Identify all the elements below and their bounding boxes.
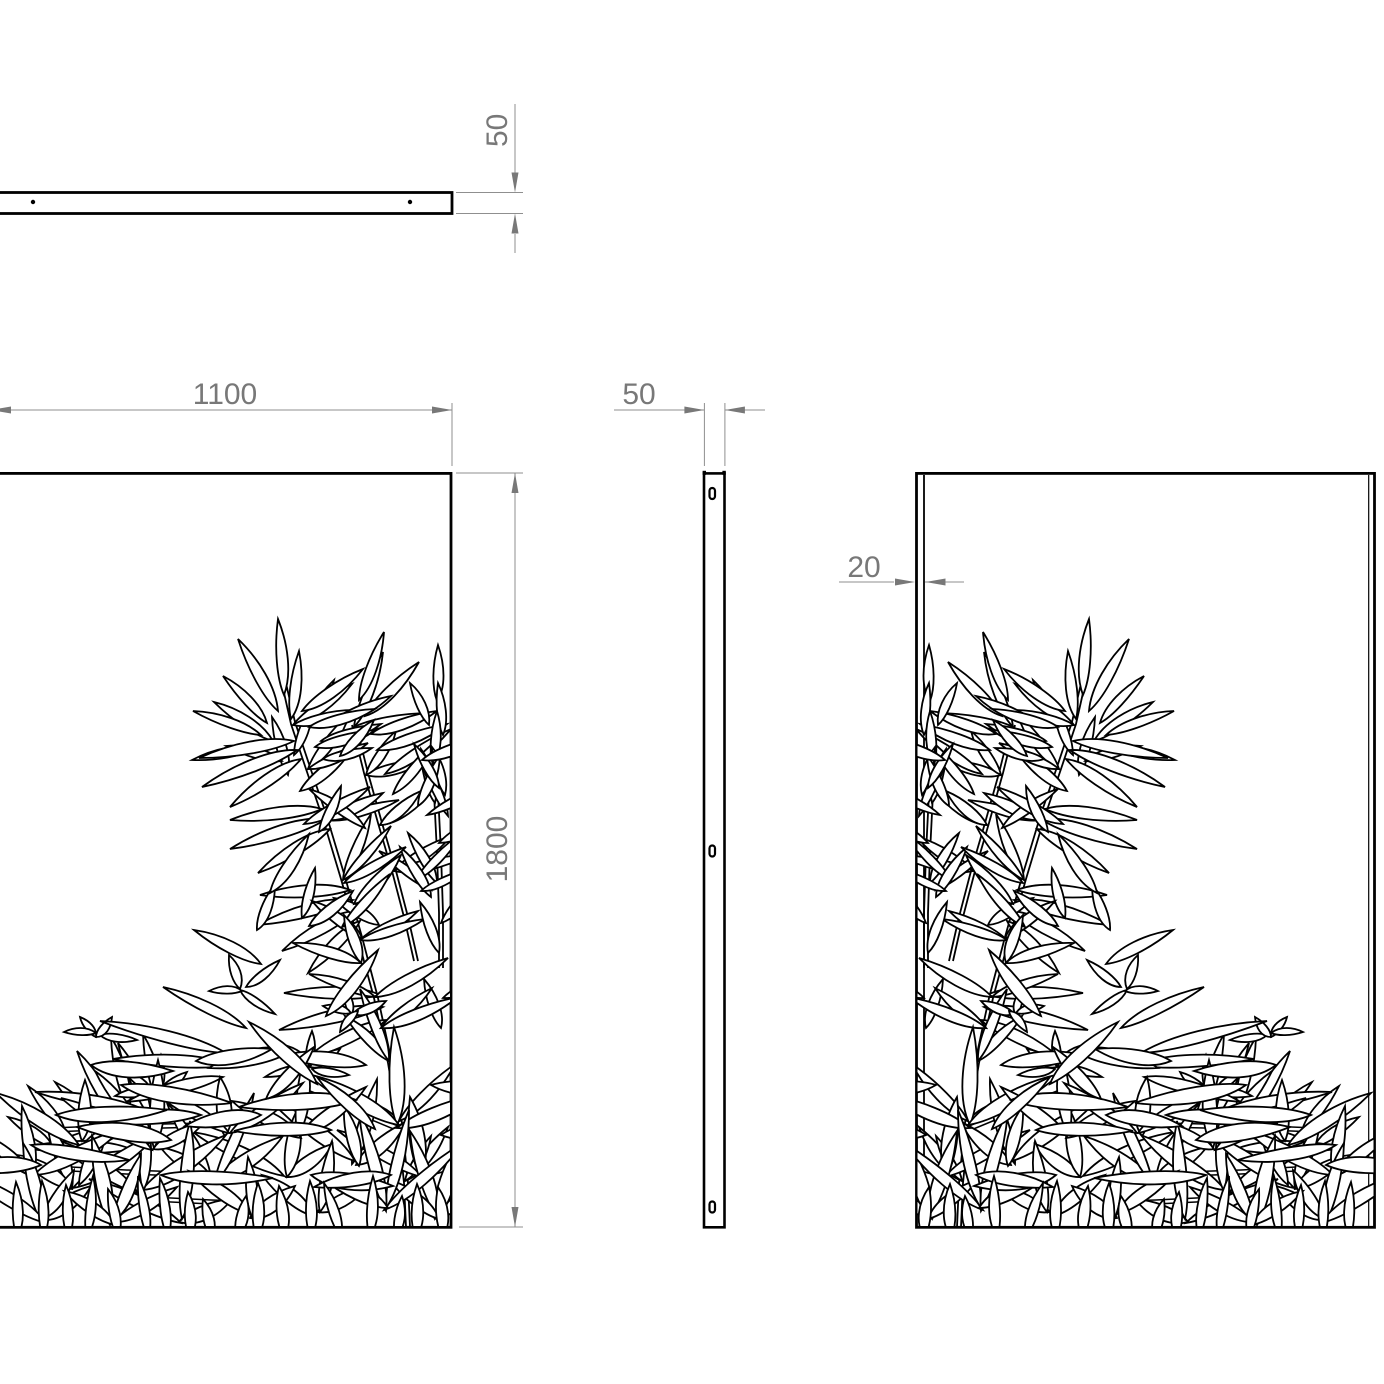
- svg-text:1100: 1100: [193, 378, 258, 411]
- svg-text:50: 50: [622, 378, 655, 411]
- svg-text:50: 50: [481, 114, 514, 147]
- svg-text:1800: 1800: [481, 816, 514, 883]
- svg-text:20: 20: [847, 551, 880, 584]
